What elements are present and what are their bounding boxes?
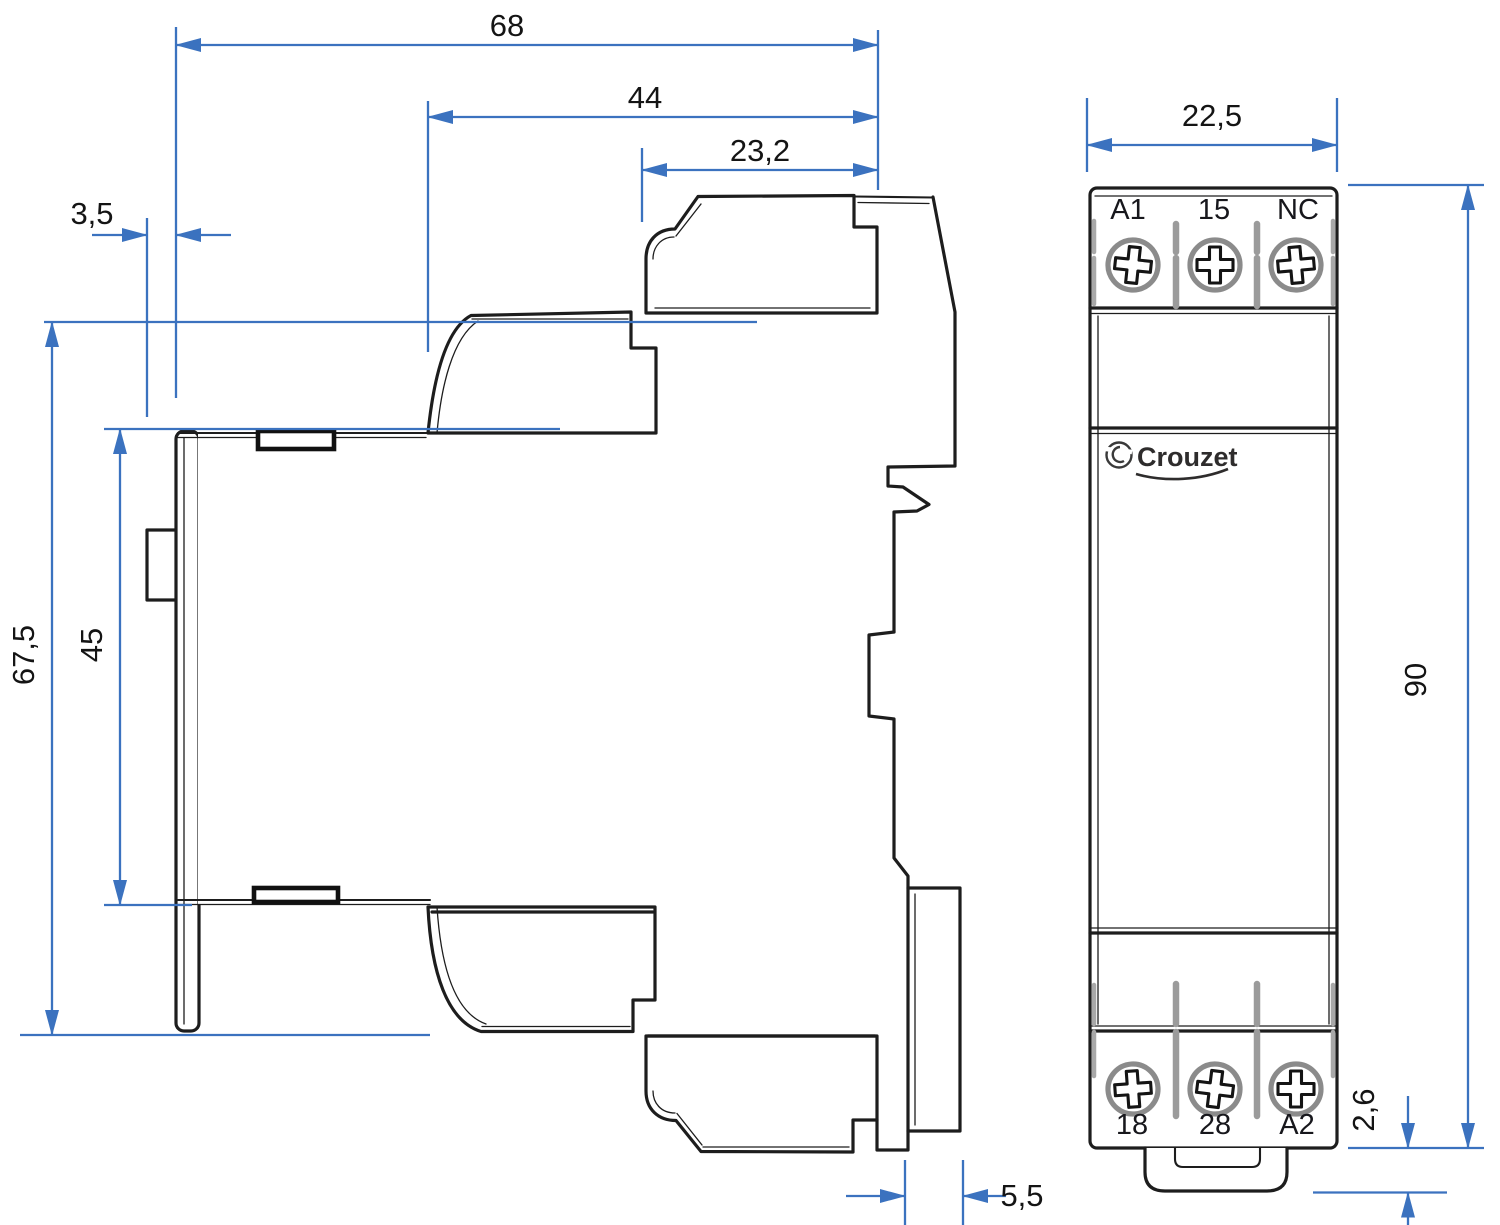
front-body (1090, 188, 1337, 1148)
front-face-profile (854, 197, 960, 1151)
svg-text:3,5: 3,5 (70, 196, 113, 231)
dimension-rail-hook-offset: 3,5 (70, 196, 231, 417)
dimension-foot-depth: 5,5 (846, 1160, 1044, 1225)
front-view: A1 15 NC 18 28 A2 Crouzet (1090, 188, 1337, 1191)
main-body (198, 434, 877, 904)
svg-text:45: 45 (74, 628, 109, 662)
svg-text:23,2: 23,2 (730, 133, 790, 168)
svg-text:2,6: 2,6 (1346, 1088, 1381, 1131)
relay-dimension-drawing: A1 15 NC 18 28 A2 Crouzet 68 (0, 0, 1500, 1225)
din-clip (1145, 1148, 1287, 1191)
screw-icon (1271, 1064, 1321, 1114)
terminal-bump-top-rear (428, 312, 656, 433)
screw-icon (1106, 238, 1161, 293)
svg-text:67,5: 67,5 (6, 625, 41, 685)
svg-text:44: 44 (628, 80, 662, 115)
screw-icon (1269, 238, 1323, 292)
side-view (147, 196, 960, 1153)
rail-slot-top (258, 431, 334, 449)
screw-icon (1106, 1062, 1159, 1115)
svg-text:90: 90 (1398, 663, 1433, 697)
dimension-width: 22,5 (1087, 98, 1337, 172)
technical-drawing-page: A1 15 NC 18 28 A2 Crouzet 68 (0, 0, 1500, 1225)
svg-text:68: 68 (490, 8, 524, 43)
rail-slot-bottom (254, 888, 338, 902)
terminal-bump-bottom-front (646, 1036, 877, 1152)
din-hook-bump (147, 530, 177, 600)
terminal-label-18: 18 (1116, 1109, 1148, 1141)
terminal-label-28: 28 (1199, 1109, 1231, 1141)
terminal-label-15: 15 (1198, 194, 1230, 226)
terminal-screws-top (1106, 238, 1324, 293)
terminal-label-a2: A2 (1279, 1109, 1314, 1141)
dimension-height: 90 (1348, 185, 1484, 1148)
terminal-label-a1: A1 (1110, 194, 1145, 226)
terminal-label-nc: NC (1277, 194, 1319, 226)
front-foot (908, 888, 960, 1131)
svg-text:22,5: 22,5 (1182, 98, 1242, 133)
screw-icon (1190, 240, 1240, 290)
rear-panel (176, 431, 199, 1031)
crouzet-logo-icon (1106, 443, 1132, 468)
terminal-bump-bottom-rear (428, 907, 655, 1032)
terminal-bump-top-front (646, 196, 877, 314)
brand-name: Crouzet (1137, 442, 1238, 472)
svg-text:5,5: 5,5 (1000, 1178, 1043, 1213)
